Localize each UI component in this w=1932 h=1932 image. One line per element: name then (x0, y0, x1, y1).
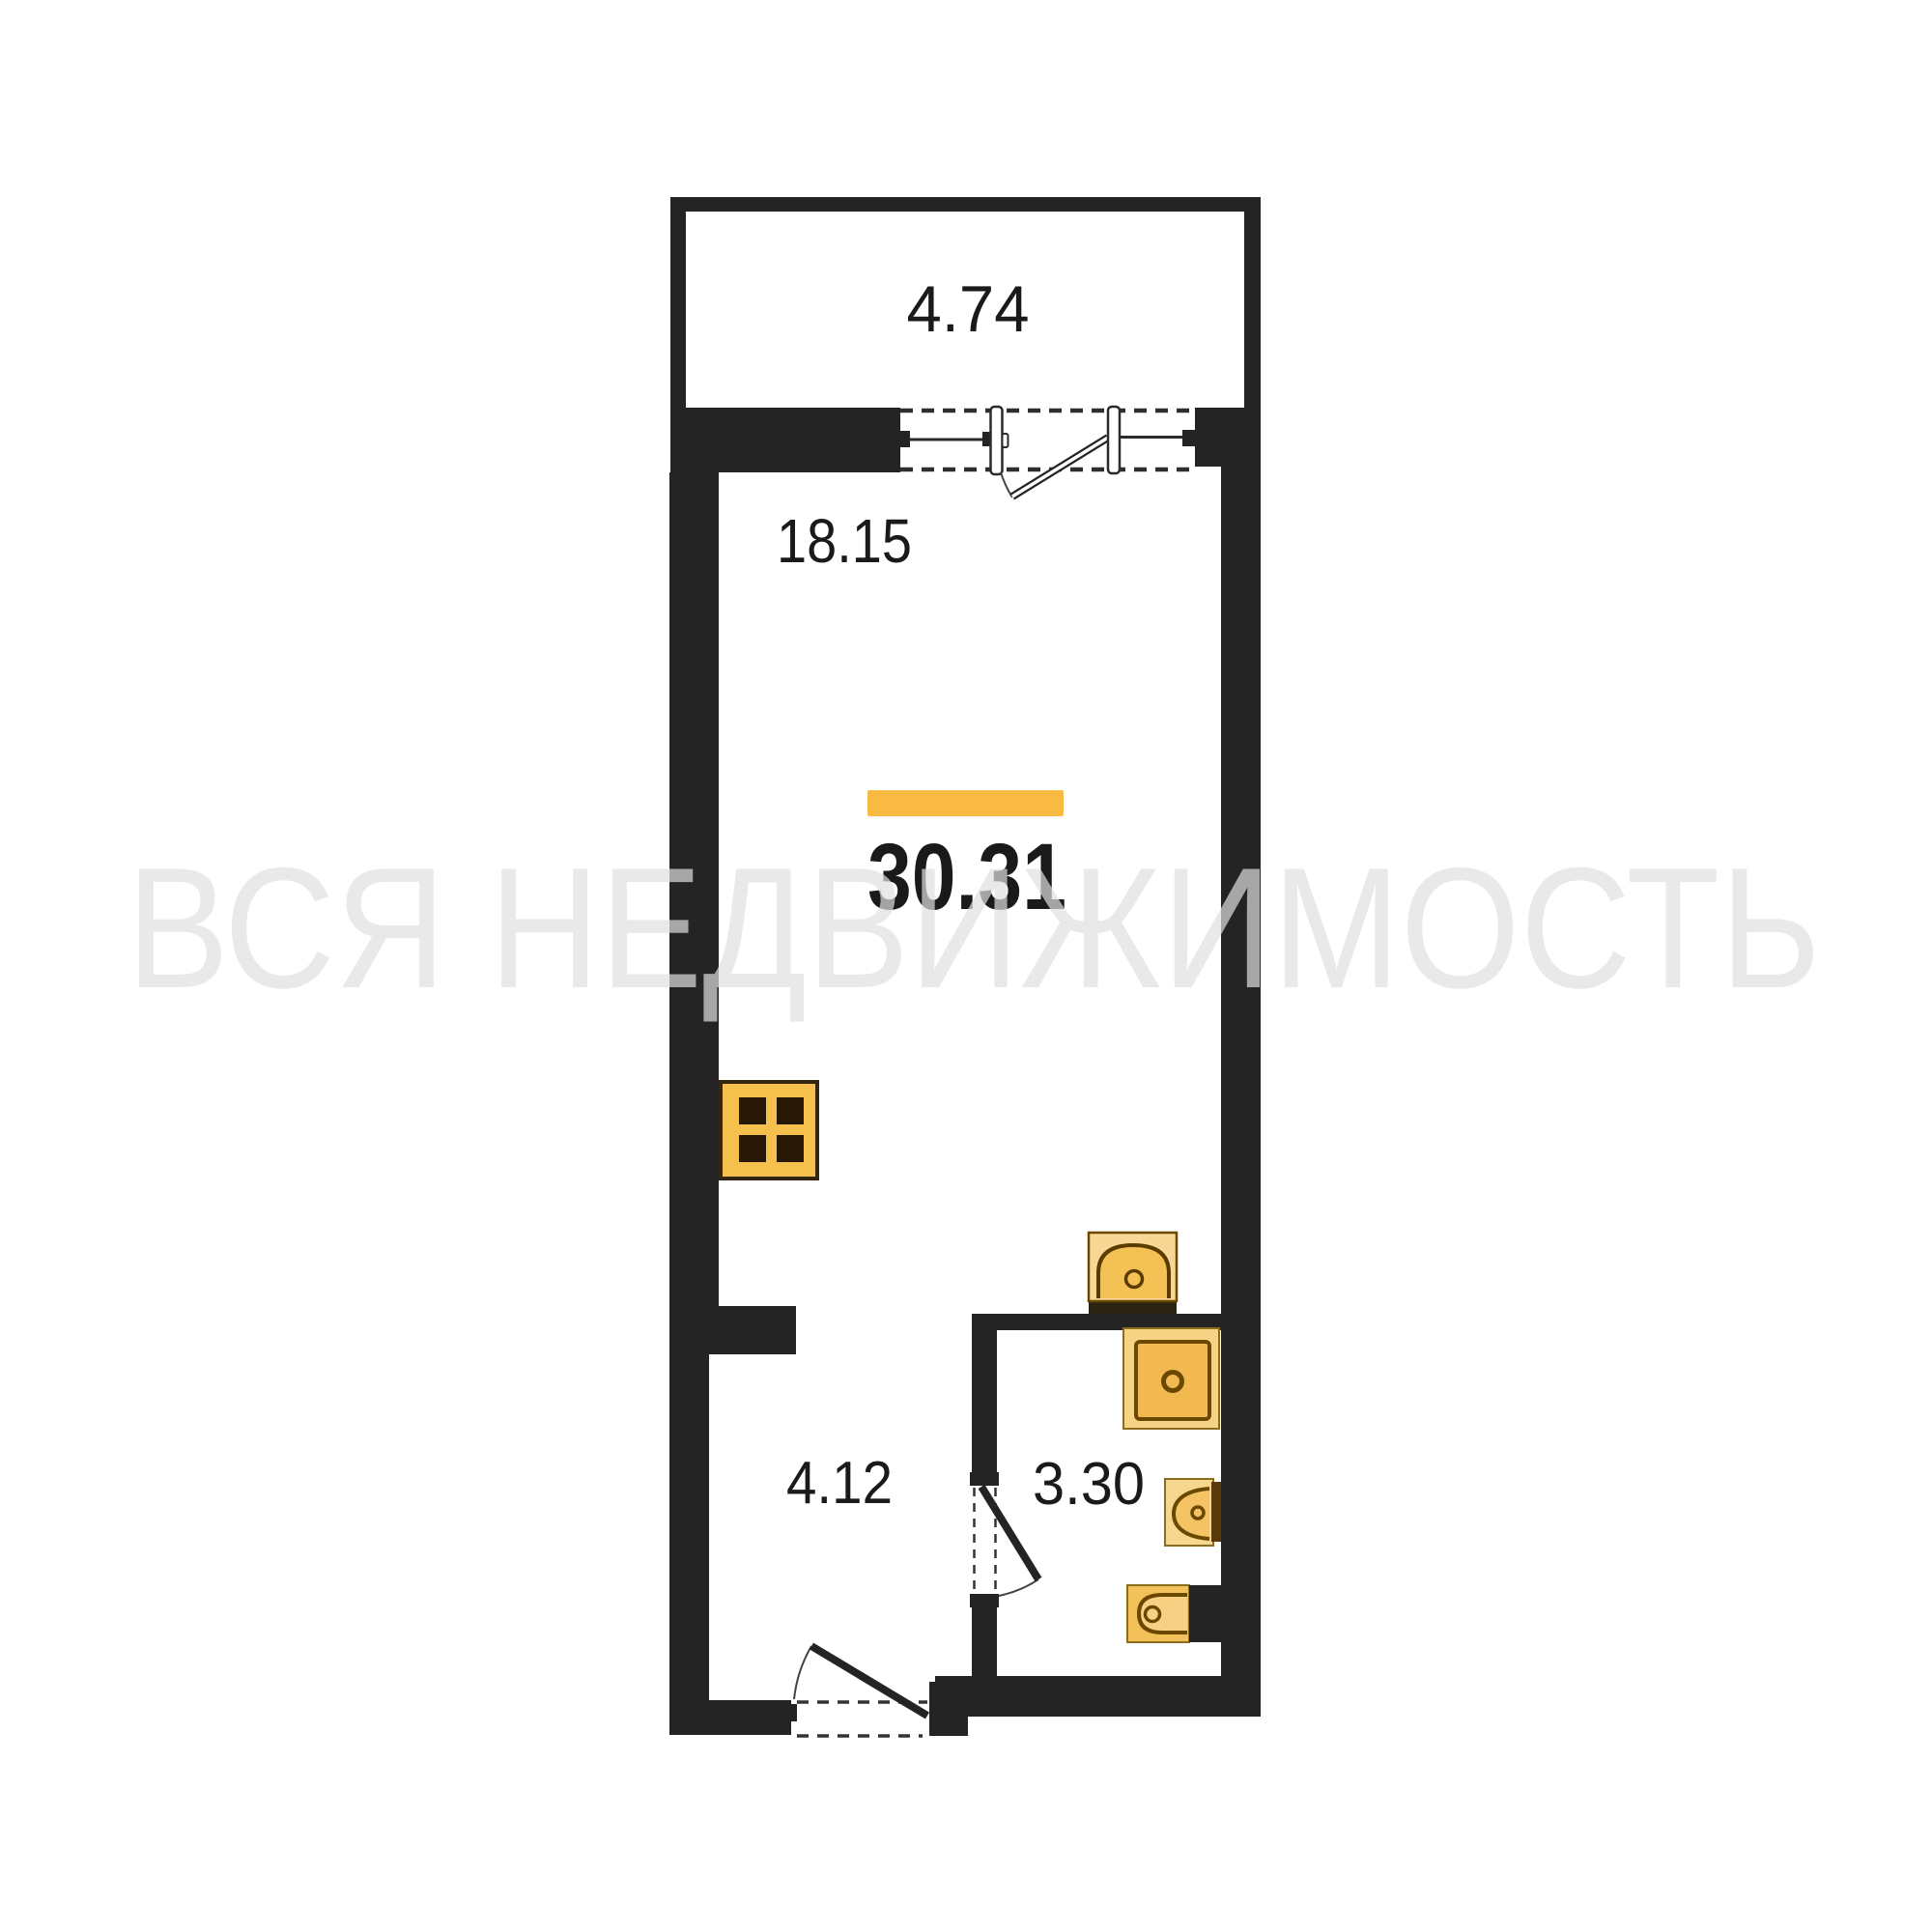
svg-text:3.30: 3.30 (1033, 1451, 1145, 1518)
svg-text:18.15: 18.15 (777, 506, 912, 576)
svg-text:4.12: 4.12 (786, 1450, 893, 1517)
svg-text:4.74: 4.74 (907, 272, 1030, 346)
svg-text:ВСЯ НЕДВИЖИМОСТЬ: ВСЯ НЕДВИЖИМОСТЬ (127, 832, 1821, 1024)
